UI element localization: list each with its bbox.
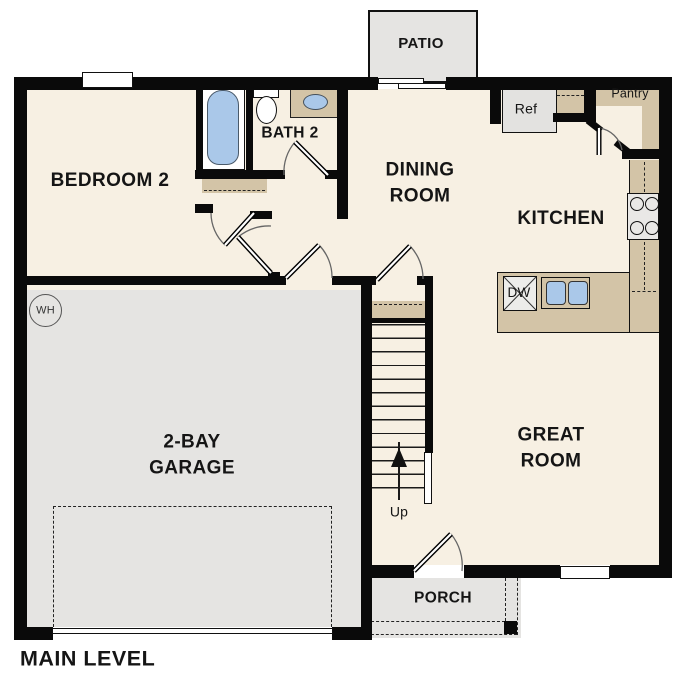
bedroom2-label: BEDROOM 2 — [51, 168, 170, 194]
wall-bottom-3 — [610, 565, 672, 578]
wall-tub-toilet — [246, 85, 253, 170]
burner — [630, 221, 644, 235]
wall-garage-stair — [361, 276, 372, 640]
wall-left — [14, 77, 27, 640]
burner — [645, 197, 659, 211]
wall-bath-right — [337, 77, 348, 219]
plan-title: MAIN LEVEL — [20, 644, 155, 673]
porch-dashed-line — [517, 578, 518, 635]
pantry-label: Pantry — [611, 86, 648, 103]
stair-up-arrow — [391, 448, 407, 467]
garage-door-line — [52, 628, 333, 634]
upper-cabinet-dashed-line — [632, 291, 656, 292]
wall-closet-jamb-right — [250, 211, 272, 219]
stair-railing — [424, 452, 432, 504]
floor-plan: PATIO BEDROOM 2 BATH 2 DINING ROOM KITCH… — [0, 0, 687, 687]
garage-parking-dashed-outline — [53, 506, 332, 627]
stairs-up-label: Up — [390, 503, 408, 522]
bathtub — [207, 90, 239, 165]
sink-basin — [546, 281, 566, 305]
porch-dashed-line — [505, 578, 506, 621]
garage-label: 2-BAY GARAGE — [149, 429, 235, 480]
closet-rod-dashed-line — [204, 190, 265, 191]
wall-garage-bottom-left — [14, 627, 53, 640]
wall-bedroom-tub — [196, 85, 203, 170]
bath2-label: BATH 2 — [261, 124, 318, 145]
stair-closet-rod-dashed-line — [374, 304, 422, 305]
patio-slider-panel — [398, 83, 446, 89]
window-bedroom — [82, 72, 133, 88]
porch-dashed-line — [366, 621, 505, 622]
stair-closet-divider-wall — [371, 318, 427, 323]
wall-bedroom-door-stub — [268, 272, 280, 283]
wall-closet-stub-left — [195, 204, 213, 213]
wall-stair-right — [425, 276, 433, 453]
dishwasher-label: DW — [508, 284, 531, 302]
sink-basin — [568, 281, 588, 305]
bath-sink — [303, 94, 328, 110]
toilet-bowl — [256, 96, 277, 124]
wall-bottom-2 — [464, 565, 560, 578]
burner — [630, 197, 644, 211]
fridge-label: Ref — [515, 100, 537, 119]
great-room-label: GREAT ROOM — [517, 422, 584, 473]
patio-label: PATIO — [398, 34, 444, 54]
window-great-room — [560, 566, 610, 579]
porch-dashed-line — [366, 634, 517, 635]
wall-bath-bottom — [195, 170, 285, 179]
kitchen-label: KITCHEN — [517, 206, 604, 232]
porch-post — [504, 621, 517, 634]
dining-room-label: DINING ROOM — [386, 157, 455, 208]
upper-cabinet-dashed-line — [644, 162, 645, 192]
wall-fridge-stub — [490, 77, 501, 124]
upper-cabinet-dashed-line — [644, 242, 645, 290]
upper-cabinet-dashed-line — [557, 95, 584, 96]
wall-garage-top-1 — [27, 276, 286, 285]
water-heater-label: WH — [36, 304, 55, 319]
porch-label: PORCH — [414, 589, 472, 610]
wall-garage-bottom-right — [332, 627, 363, 640]
burner — [645, 221, 659, 235]
wall-bath-door-jamb — [325, 170, 337, 179]
